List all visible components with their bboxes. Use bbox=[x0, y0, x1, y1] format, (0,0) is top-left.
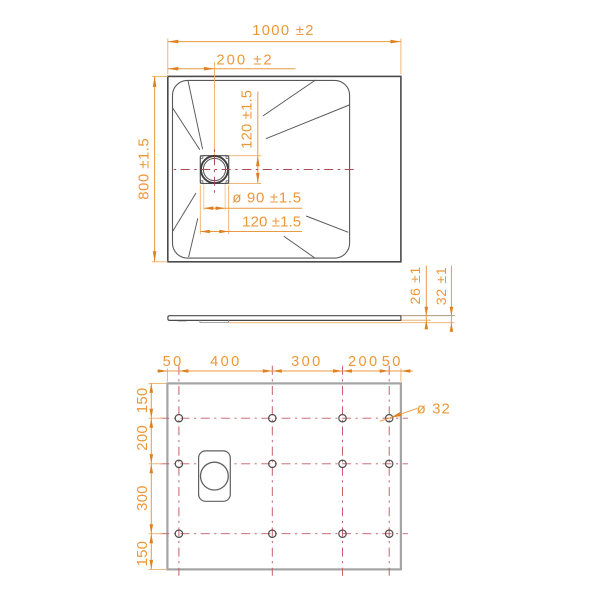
svg-text:300: 300 bbox=[134, 485, 151, 511]
svg-text:150: 150 bbox=[134, 388, 151, 414]
svg-text:ø 32: ø 32 bbox=[417, 400, 451, 417]
svg-text:26 ±1: 26 ±1 bbox=[408, 266, 424, 304]
svg-text:400: 400 bbox=[210, 354, 242, 370]
svg-text:300: 300 bbox=[291, 354, 323, 370]
svg-text:150: 150 bbox=[134, 541, 151, 567]
svg-text:120 ±1.5: 120 ±1.5 bbox=[242, 214, 301, 231]
svg-text:1000 ±2: 1000 ±2 bbox=[252, 23, 314, 39]
svg-text:50: 50 bbox=[382, 354, 403, 370]
svg-text:50: 50 bbox=[163, 354, 184, 370]
svg-text:800 ±1.5: 800 ±1.5 bbox=[136, 138, 153, 200]
svg-text:200: 200 bbox=[348, 354, 380, 370]
svg-text:120 ±1.5: 120 ±1.5 bbox=[239, 90, 255, 149]
svg-text:200: 200 bbox=[134, 425, 151, 451]
svg-text:32 ±1: 32 ±1 bbox=[434, 267, 450, 305]
svg-text:200 ±2: 200 ±2 bbox=[216, 52, 273, 68]
svg-text:ø 90 ±1.5: ø 90 ±1.5 bbox=[232, 190, 302, 207]
